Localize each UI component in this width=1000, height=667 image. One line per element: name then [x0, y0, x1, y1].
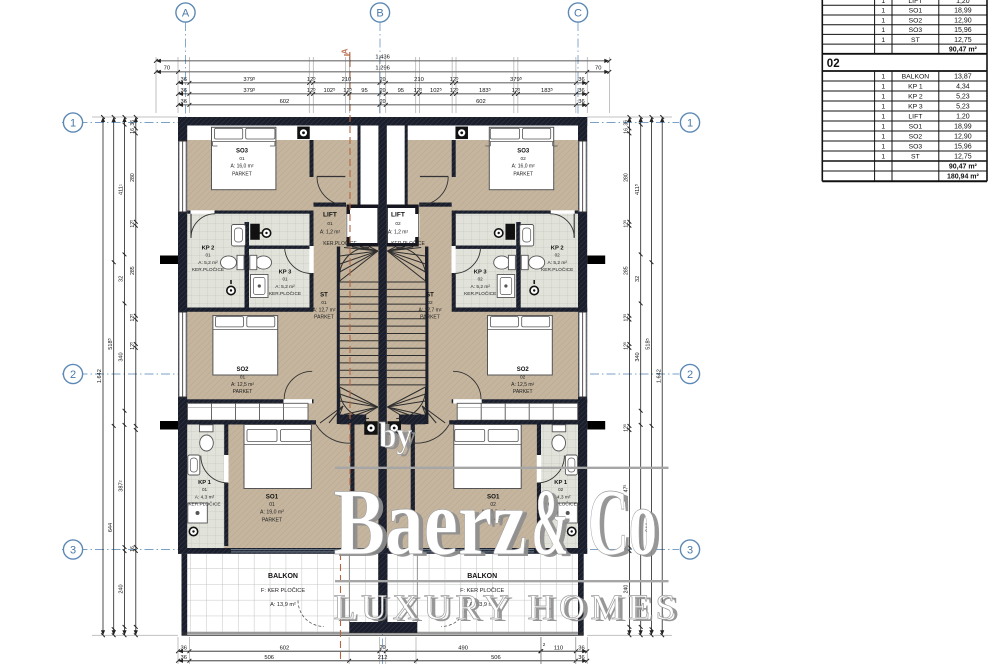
svg-text:A: 19,0 m²: A: 19,0 m² — [260, 510, 284, 516]
svg-text:1,20: 1,20 — [956, 114, 970, 121]
svg-text:A: 4,3 m²: A: 4,3 m² — [195, 494, 215, 500]
svg-text:01: 01 — [205, 253, 211, 258]
svg-text:1.642: 1.642 — [656, 369, 662, 383]
svg-text:KER.PLOČICE: KER.PLOČICE — [192, 266, 224, 273]
svg-text:36: 36 — [578, 77, 584, 83]
svg-text:3: 3 — [70, 544, 76, 556]
svg-text:1: 1 — [687, 117, 693, 129]
svg-text:KER.PLOČICE: KER.PLOČICE — [269, 290, 301, 297]
svg-text:1: 1 — [881, 17, 885, 24]
svg-text:A: 5,2 m²: A: 5,2 m² — [198, 260, 218, 266]
svg-text:PARKET: PARKET — [513, 389, 533, 395]
svg-text:LIFT: LIFT — [391, 212, 405, 219]
svg-text:KP 2: KP 2 — [202, 246, 215, 252]
svg-text:KER.PLOČICE: KER.PLOČICE — [541, 266, 573, 273]
svg-text:1: 1 — [70, 117, 76, 129]
svg-text:1: 1 — [881, 114, 885, 121]
svg-text:BALKON: BALKON — [268, 573, 298, 580]
svg-text:02: 02 — [478, 277, 484, 282]
svg-text:602: 602 — [280, 645, 290, 651]
svg-text:5,23: 5,23 — [956, 104, 970, 111]
svg-text:F: KER PLOČICE: F: KER PLOČICE — [261, 587, 305, 594]
svg-text:36: 36 — [578, 88, 584, 94]
svg-text:PARKET: PARKET — [314, 315, 334, 321]
svg-text:KP 1: KP 1 — [908, 84, 923, 91]
svg-text:PARKET: PARKET — [420, 315, 440, 321]
svg-text:PARKET: PARKET — [233, 389, 253, 395]
svg-text:36: 36 — [180, 99, 186, 105]
svg-text:36: 36 — [180, 655, 186, 661]
svg-text:180,94 m²: 180,94 m² — [947, 174, 980, 181]
svg-text:C: C — [574, 7, 582, 19]
svg-text:ST: ST — [426, 293, 434, 299]
svg-text:LIFT: LIFT — [908, 0, 922, 5]
svg-text:SO2: SO2 — [909, 134, 923, 141]
svg-text:1: 1 — [881, 84, 885, 91]
svg-text:PARKET: PARKET — [513, 171, 533, 177]
svg-text:LIFT: LIFT — [323, 212, 337, 219]
svg-text:01: 01 — [240, 374, 246, 380]
svg-text:A: 1,2 m²: A: 1,2 m² — [388, 230, 409, 236]
svg-text:285: 285 — [624, 266, 630, 275]
svg-text:70: 70 — [164, 66, 170, 72]
svg-text:02: 02 — [555, 253, 561, 258]
svg-text:SO2: SO2 — [517, 367, 530, 373]
svg-text:90,47 m²: 90,47 m² — [949, 164, 978, 171]
svg-text:12,75: 12,75 — [954, 37, 972, 44]
svg-text:1: 1 — [881, 134, 885, 141]
svg-text:A: 12,7 m²: A: 12,7 m² — [312, 307, 335, 313]
svg-text:36: 36 — [180, 77, 186, 83]
svg-text:A: 13,9 m²: A: 13,9 m² — [270, 602, 296, 608]
svg-text:16: 16 — [130, 546, 136, 552]
svg-text:36: 36 — [180, 645, 186, 651]
svg-text:KER.PLOČICE: KER.PLOČICE — [391, 240, 425, 247]
svg-text:12,90: 12,90 — [954, 134, 972, 141]
svg-text:1: 1 — [881, 74, 885, 81]
svg-text:1.296: 1.296 — [375, 66, 390, 72]
svg-text:KP 3: KP 3 — [908, 104, 923, 111]
svg-text:36: 36 — [578, 645, 584, 651]
svg-text:SO1: SO1 — [909, 8, 923, 15]
svg-text:36: 36 — [130, 120, 136, 126]
svg-text:ST: ST — [911, 37, 920, 44]
svg-text:16: 16 — [624, 128, 630, 134]
svg-text:1: 1 — [881, 0, 885, 5]
svg-text:KP 3: KP 3 — [279, 270, 293, 276]
svg-text:1: 1 — [881, 154, 885, 161]
svg-text:340: 340 — [635, 352, 641, 361]
svg-text:280: 280 — [130, 173, 136, 182]
svg-text:ST: ST — [911, 154, 920, 161]
svg-text:B: B — [376, 7, 383, 19]
svg-text:15,96: 15,96 — [954, 27, 972, 34]
svg-text:02: 02 — [827, 58, 840, 70]
svg-text:3: 3 — [687, 544, 693, 556]
svg-text:A: 16,0 m²: A: 16,0 m² — [230, 164, 253, 170]
svg-text:KP 2: KP 2 — [908, 94, 923, 101]
svg-text:KER.PLOČICE: KER.PLOČICE — [464, 290, 496, 297]
svg-text:2: 2 — [687, 369, 693, 381]
svg-text:1: 1 — [881, 124, 885, 131]
svg-text:1: 1 — [881, 144, 885, 151]
svg-text:20: 20 — [380, 77, 386, 83]
svg-text:KP 3: KP 3 — [474, 270, 488, 276]
svg-text:01: 01 — [202, 487, 208, 492]
svg-text:02: 02 — [427, 300, 433, 306]
svg-text:01: 01 — [282, 277, 288, 282]
svg-text:PARKET: PARKET — [232, 171, 252, 177]
svg-text:1,20: 1,20 — [956, 0, 970, 5]
svg-text:70: 70 — [595, 66, 601, 72]
svg-text:SO3: SO3 — [236, 149, 249, 155]
svg-text:A: 12,5 m²: A: 12,5 m² — [231, 382, 254, 388]
svg-text:1: 1 — [881, 27, 885, 34]
svg-text:KER.PLOČICE: KER.PLOČICE — [188, 501, 220, 508]
svg-text:A: 12,5 m²: A: 12,5 m² — [511, 382, 534, 388]
svg-text:A: A — [341, 48, 350, 54]
svg-text:4,34: 4,34 — [956, 84, 970, 91]
svg-text:36: 36 — [578, 655, 584, 661]
svg-text:SO2: SO2 — [909, 17, 923, 24]
svg-text:02: 02 — [520, 374, 526, 380]
svg-text:A: 16,0 m²: A: 16,0 m² — [512, 164, 535, 170]
svg-text:12,75: 12,75 — [954, 154, 972, 161]
svg-text:&: & — [532, 469, 569, 575]
svg-text:280: 280 — [624, 173, 630, 182]
svg-text:32: 32 — [635, 276, 641, 282]
svg-text:95: 95 — [398, 88, 404, 94]
svg-text:Baerz: Baerz — [334, 469, 527, 575]
svg-text:A: 12,7 m²: A: 12,7 m² — [418, 307, 441, 313]
svg-text:LIFT: LIFT — [908, 114, 922, 121]
svg-text:90,47 m²: 90,47 m² — [949, 47, 978, 54]
svg-text:12,90: 12,90 — [954, 17, 972, 24]
svg-text:110: 110 — [554, 645, 563, 651]
svg-text:by: by — [379, 415, 412, 455]
svg-text:SO2: SO2 — [236, 367, 249, 373]
svg-text:36: 36 — [578, 99, 584, 105]
svg-text:SO3: SO3 — [909, 144, 923, 151]
svg-text:Co: Co — [588, 469, 657, 575]
svg-text:2: 2 — [543, 642, 546, 647]
svg-text:602: 602 — [280, 99, 290, 105]
svg-text:5,23: 5,23 — [956, 94, 970, 101]
svg-text:A: 1,2 m²: A: 1,2 m² — [320, 230, 341, 236]
svg-text:36: 36 — [180, 88, 186, 94]
svg-text:95: 95 — [361, 88, 367, 94]
svg-text:506: 506 — [264, 655, 274, 661]
svg-text:36: 36 — [624, 120, 630, 126]
svg-text:18,99: 18,99 — [954, 124, 972, 131]
svg-text:490: 490 — [458, 645, 468, 651]
svg-text:KP 2: KP 2 — [551, 246, 564, 252]
svg-text:SO1: SO1 — [266, 494, 279, 501]
svg-text:SO3: SO3 — [517, 149, 530, 155]
svg-text:02: 02 — [521, 156, 527, 162]
svg-text:1: 1 — [881, 8, 885, 15]
svg-text:ST: ST — [320, 293, 328, 299]
svg-text:602: 602 — [476, 99, 486, 105]
svg-text:285: 285 — [130, 266, 136, 275]
svg-text:13,87: 13,87 — [954, 74, 972, 81]
svg-text:KER.PLOČICE: KER.PLOČICE — [323, 240, 357, 247]
svg-text:A: A — [182, 7, 190, 19]
svg-text:A: 5,2 m²: A: 5,2 m² — [470, 284, 490, 290]
svg-text:16: 16 — [130, 128, 136, 134]
svg-text:SO1: SO1 — [909, 124, 923, 131]
svg-text:01: 01 — [321, 300, 327, 306]
svg-text:20: 20 — [380, 99, 386, 105]
svg-text:340: 340 — [119, 352, 125, 361]
svg-text:01: 01 — [327, 221, 333, 227]
svg-text:1: 1 — [881, 104, 885, 111]
svg-text:18,99: 18,99 — [954, 8, 972, 15]
svg-text:506: 506 — [491, 655, 501, 661]
svg-text:1: 1 — [881, 37, 885, 44]
svg-text:2: 2 — [70, 369, 76, 381]
svg-text:PARKET: PARKET — [262, 517, 283, 523]
svg-text:1.436: 1.436 — [375, 55, 390, 61]
svg-text:15,96: 15,96 — [954, 144, 972, 151]
svg-text:01: 01 — [239, 156, 245, 162]
svg-text:A: 5,2 m²: A: 5,2 m² — [547, 260, 567, 266]
svg-text:BALKON: BALKON — [902, 74, 930, 81]
svg-text:1.642: 1.642 — [97, 369, 103, 383]
svg-text:240: 240 — [119, 584, 125, 593]
svg-text:A: 5,2 m²: A: 5,2 m² — [275, 284, 295, 290]
svg-text:KP 1: KP 1 — [198, 480, 212, 486]
svg-text:20: 20 — [380, 88, 386, 94]
svg-text:32: 32 — [119, 276, 125, 282]
svg-text:SO3: SO3 — [909, 27, 923, 34]
svg-text:02: 02 — [395, 221, 401, 227]
svg-text:01: 01 — [269, 502, 275, 508]
svg-text:1: 1 — [881, 94, 885, 101]
svg-text:210: 210 — [342, 77, 352, 83]
svg-text:20: 20 — [380, 645, 386, 651]
svg-text:644: 644 — [108, 523, 114, 532]
